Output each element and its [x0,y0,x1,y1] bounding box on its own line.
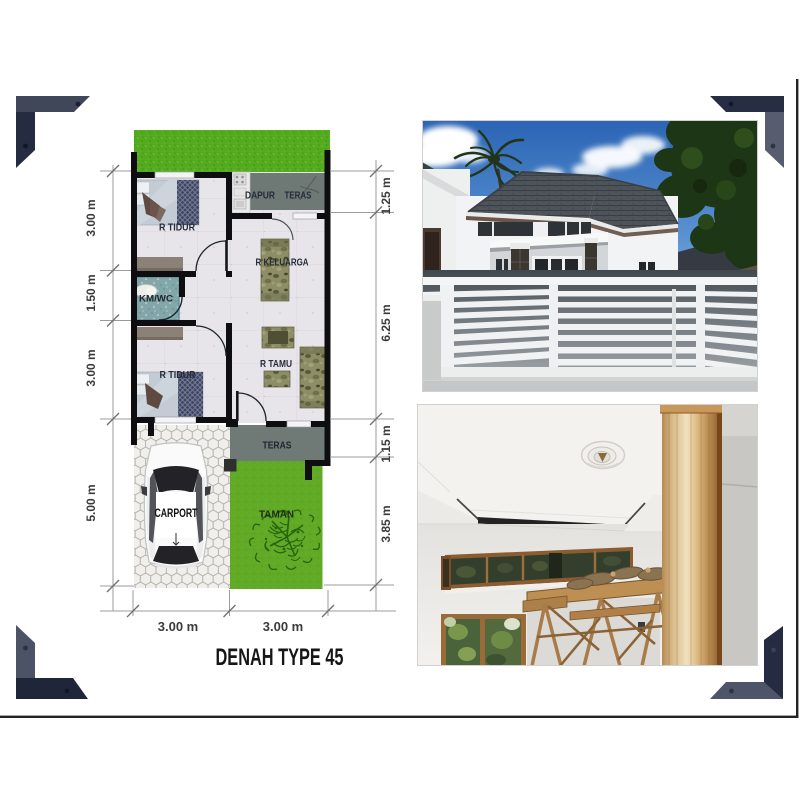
svg-text:3.00 m: 3.00 m [84,199,98,236]
svg-text:R KELUARGA: R KELUARGA [256,257,309,269]
svg-text:3.85 m: 3.85 m [379,505,393,542]
svg-text:DENAH TYPE 45: DENAH TYPE 45 [216,644,344,671]
svg-text:1.50 m: 1.50 m [84,274,98,311]
svg-text:R TAMU: R TAMU [260,359,292,370]
svg-text:R TIDUR: R TIDUR [159,223,196,234]
svg-text:6.25 m: 6.25 m [379,304,393,341]
svg-text:CARPORT: CARPORT [155,508,198,520]
svg-text:KM/WC: KM/WC [139,294,173,305]
svg-text:TERAS: TERAS [285,191,312,202]
svg-text:5.00 m: 5.00 m [84,484,98,521]
svg-text:TERAS: TERAS [263,440,292,452]
svg-text:3.00 m: 3.00 m [158,619,198,634]
svg-text:TAMAN: TAMAN [259,510,294,521]
svg-text:R TIDUR: R TIDUR [160,370,197,381]
svg-text:DAPUR: DAPUR [245,191,276,202]
svg-text:1.25 m: 1.25 m [379,177,393,214]
svg-text:1.15 m: 1.15 m [379,425,393,462]
svg-text:3.00 m: 3.00 m [84,349,98,386]
svg-text:3.00 m: 3.00 m [263,619,303,634]
